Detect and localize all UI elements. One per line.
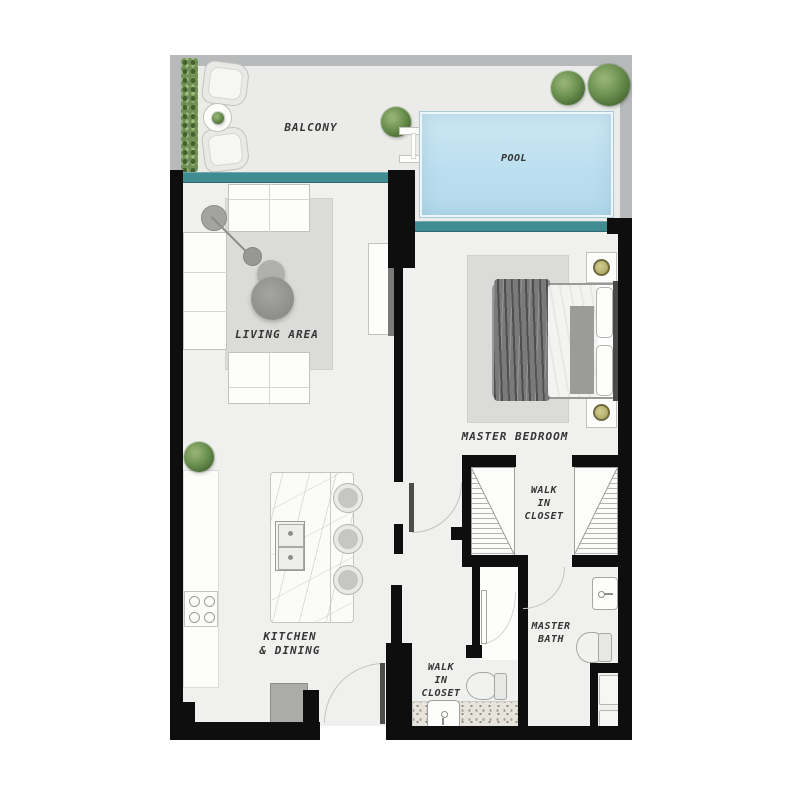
label-closet-lower: WALK IN CLOSET: [411, 661, 471, 700]
label-pool: POOL: [474, 152, 554, 165]
label-kitchen-line2: & DINING: [230, 644, 350, 658]
floor-plan: BALCONY POOL LIVING AREA KITCHEN & DININ…: [0, 0, 800, 800]
room-labels: BALCONY POOL LIVING AREA KITCHEN & DININ…: [0, 0, 800, 800]
label-closet-lower-line1: WALK: [411, 661, 471, 674]
label-balcony: BALCONY: [266, 121, 356, 135]
label-closet-upper: WALK IN CLOSET: [514, 484, 574, 523]
label-closet-upper-line3: CLOSET: [514, 510, 574, 523]
label-closet-lower-line2: IN: [411, 674, 471, 687]
label-living-area: LIVING AREA: [217, 328, 337, 342]
label-master-bedroom: MASTER BEDROOM: [445, 430, 585, 444]
label-closet-lower-line3: CLOSET: [411, 687, 471, 700]
label-master-bath: MASTER BATH: [519, 620, 583, 646]
label-closet-upper-line2: IN: [514, 497, 574, 510]
label-kitchen: KITCHEN & DINING: [230, 630, 350, 659]
label-master-bath-line1: MASTER: [519, 620, 583, 633]
label-kitchen-line1: KITCHEN: [230, 630, 350, 644]
label-closet-upper-line1: WALK: [514, 484, 574, 497]
label-master-bath-line2: BATH: [519, 633, 583, 646]
